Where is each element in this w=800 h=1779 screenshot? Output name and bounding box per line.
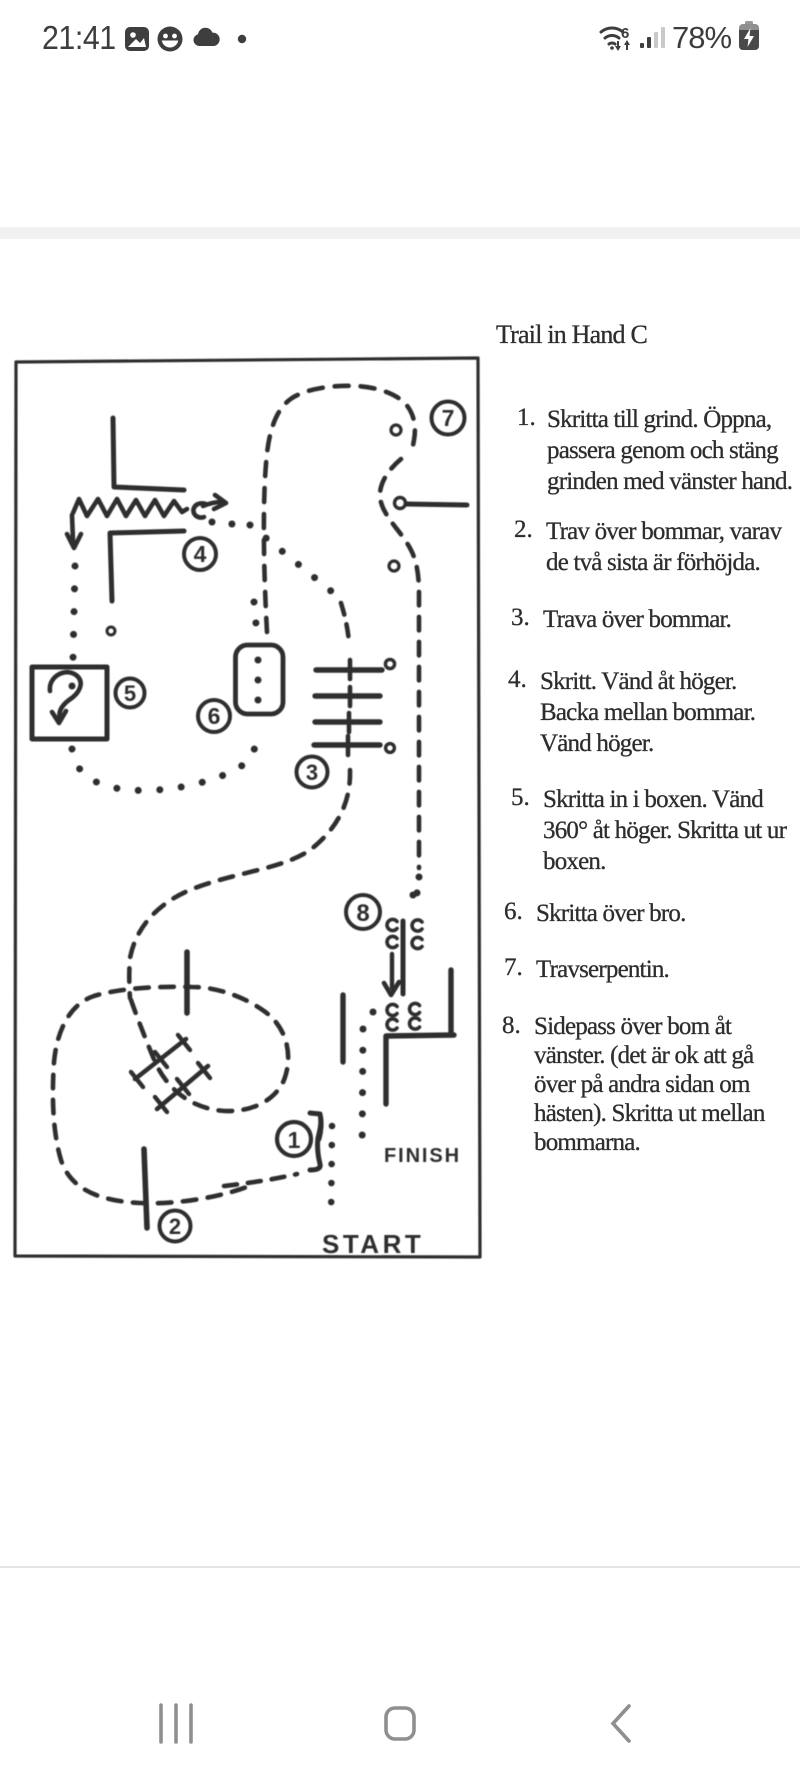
svg-text:8: 8 — [356, 900, 369, 927]
svg-text:1: 1 — [288, 1127, 301, 1153]
svg-text:3: 3 — [306, 760, 318, 785]
svg-text:5: 5 — [124, 681, 136, 706]
svg-text:4: 4 — [194, 541, 207, 567]
svg-text:FINISH: FINISH — [384, 1145, 461, 1167]
svg-text:6: 6 — [208, 703, 221, 729]
svg-text:7: 7 — [442, 405, 455, 431]
svg-text:2: 2 — [169, 1214, 181, 1239]
svg-text:START: START — [322, 1229, 424, 1259]
